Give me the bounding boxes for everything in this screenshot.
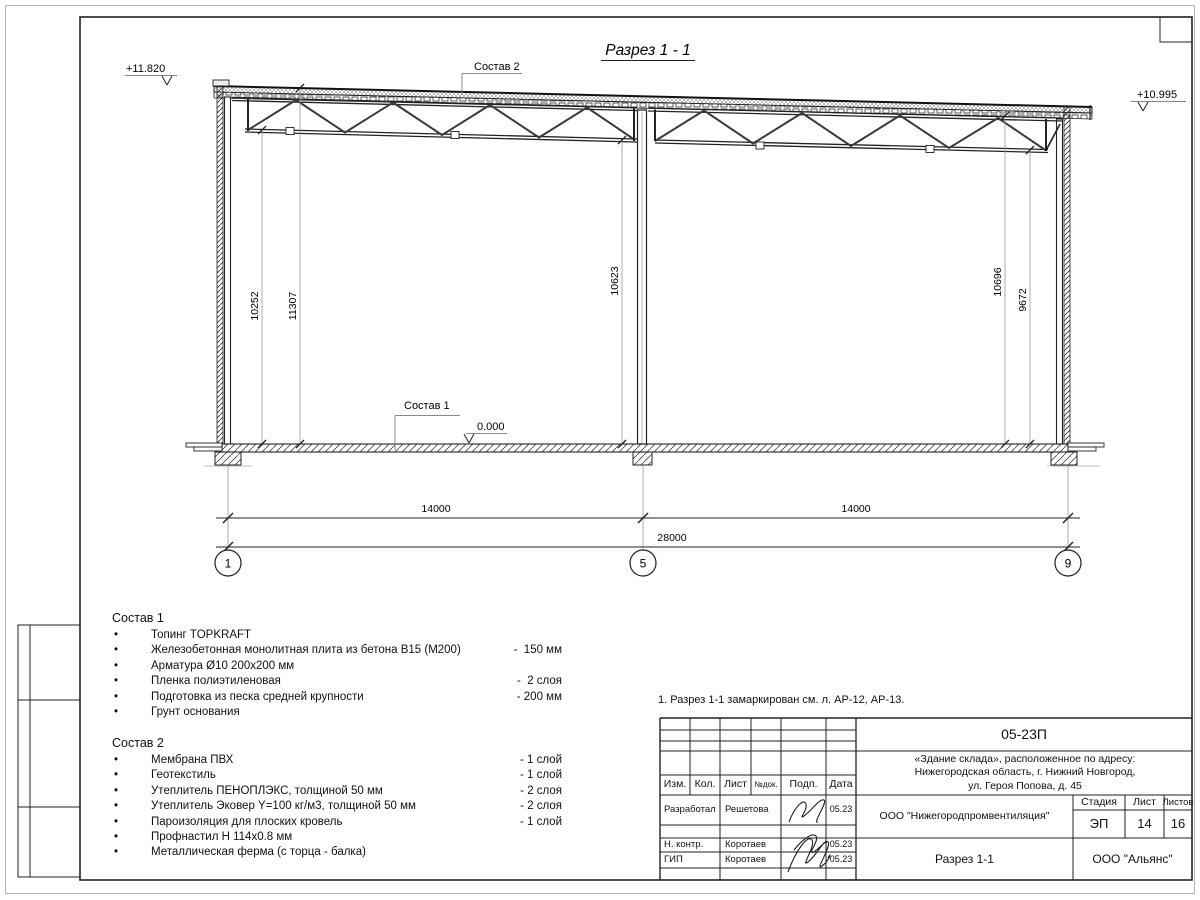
org-name: ООО "Нижегородпромвентиляция": [856, 795, 1073, 838]
col-header-ndok: №док.: [751, 775, 781, 795]
signatures: [788, 800, 830, 872]
col-header-podp: Подп.: [781, 775, 826, 795]
list-item: •Профнастил Н 114х0.8 мм: [112, 830, 562, 845]
sheets-total: 16: [1164, 810, 1192, 838]
row-date: 05.23: [826, 838, 856, 852]
row-name: Коротаев: [722, 852, 783, 868]
bullet-icon: •: [112, 830, 151, 845]
drawing-title: Разрез 1 - 1: [605, 42, 690, 59]
bullet-icon: •: [112, 628, 151, 643]
col-header-izm: Изм.: [660, 775, 690, 795]
row-role: Н. контр.: [661, 838, 722, 852]
hdim-span2: 14000: [841, 503, 870, 515]
bullet-icon: •: [112, 643, 151, 658]
list-item: •Подготовка из песка средней крупности- …: [112, 690, 562, 705]
walls-columns: [217, 86, 1070, 444]
vdim-1: 10252: [249, 291, 261, 320]
bullet-icon: •: [112, 768, 151, 783]
sheets-label: Листов: [1164, 795, 1192, 810]
project-name: «Здание склада», расположенное по адресу…: [858, 751, 1192, 795]
axis-bubble-5: 5: [640, 557, 647, 571]
bullet-icon: •: [112, 845, 151, 860]
col-header-list: Лист: [720, 775, 751, 795]
right-column: [1057, 119, 1063, 444]
vdim-4: 10696: [992, 267, 1004, 296]
doc-code: 05-23П: [856, 718, 1192, 751]
axis-lines: [228, 465, 1068, 551]
signature-razrabotal: [789, 800, 825, 822]
bullet-icon: •: [112, 690, 151, 705]
stage-label: Стадия: [1073, 795, 1125, 810]
left-wall-panel: [217, 86, 223, 444]
row-role: ГИП: [661, 852, 722, 868]
note: 1. Разрез 1-1 замаркирован см. л. АР-12,…: [658, 694, 1088, 706]
section-title: Разрез 1-1: [856, 838, 1073, 880]
left-margin-stamps: [18, 625, 80, 877]
right-wall-panel: [1064, 107, 1070, 444]
bullet-icon: •: [112, 815, 151, 830]
foundation-middle: [633, 452, 652, 465]
row-date: 05.23: [826, 852, 856, 868]
bullet-icon: •: [112, 753, 151, 768]
row-name: Коротаев: [722, 838, 783, 852]
axis-bubble-1: 1: [225, 557, 232, 571]
elevation-left: +11.820: [126, 63, 165, 75]
sostav2-list: Состав 2 •Мембрана ПВХ- 1 слой •Геотекст…: [112, 736, 562, 861]
vdim-2: 11307: [287, 292, 299, 321]
org2-name: ООО "Альянс": [1073, 838, 1192, 880]
elevation-right: +10.995: [1137, 89, 1177, 101]
sostav2-title: Состав 2: [112, 736, 562, 750]
foundation-right: [1051, 452, 1077, 465]
col-header-data: Дата: [826, 775, 856, 795]
list-item: •Металлическая ферма (с торца - балка): [112, 845, 562, 860]
stage-value: ЭП: [1073, 810, 1125, 838]
hdim-total: 28000: [657, 532, 686, 544]
sostav1-title: Состав 1: [112, 611, 562, 625]
foundation-left: [215, 452, 241, 465]
sheet-number: 14: [1125, 810, 1164, 838]
bullet-icon: •: [112, 784, 151, 799]
row-name: Решетова: [722, 795, 783, 825]
list-item: •Топинг TOPKRAFT: [112, 628, 562, 643]
axis-bubble-9: 9: [1065, 557, 1072, 571]
list-item: •Железобетонная монолитная плита из бето…: [112, 643, 562, 658]
list-item: •Грунт основания: [112, 705, 562, 720]
horizontal-dimensions: 14000 14000 28000 1 5 9: [215, 503, 1081, 576]
bullet-icon: •: [112, 659, 151, 674]
sostav1-list: Состав 1 •Топинг TOPKRAFT •Железобетонна…: [112, 611, 562, 720]
vdim-3: 10623: [609, 266, 621, 295]
hdim-span1: 14000: [421, 503, 450, 515]
elevation-zero: 0.000: [477, 421, 505, 433]
list-item: •Арматура Ø10 200х200 мм: [112, 659, 562, 674]
list-item: •Мембрана ПВХ- 1 слой: [112, 753, 562, 768]
bullet-icon: •: [112, 674, 151, 689]
sostav1-callout: Состав 1: [404, 400, 450, 412]
row-date: 05.23: [826, 795, 856, 825]
list-item: •Пленка полиэтиленовая- 2 слоя: [112, 674, 562, 689]
bullet-icon: •: [112, 799, 151, 814]
list-item: •Геотекстиль- 1 слой: [112, 768, 562, 783]
floor-slab: [186, 443, 1104, 466]
vdim-5: 9672: [1017, 288, 1029, 312]
sostav2-callout: Состав 2: [474, 61, 520, 73]
col-header-kol: Кол.: [690, 775, 720, 795]
bullet-icon: •: [112, 705, 151, 720]
list-item: •Утеплитель ПЕНОПЛЭКС, толщиной 50 мм- 2…: [112, 784, 562, 799]
drawing-sheet: 10252 11307 10623 10696 9672 14000 14000…: [0, 0, 1200, 900]
left-column: [225, 97, 231, 444]
list-item: •Утеплитель Эковер Y=100 кг/м3, толщиной…: [112, 799, 562, 814]
list-item: •Пароизоляция для плоских кровель- 1 сло…: [112, 815, 562, 830]
sheet-label: Лист: [1125, 795, 1164, 810]
row-role: Разработал: [661, 795, 722, 825]
